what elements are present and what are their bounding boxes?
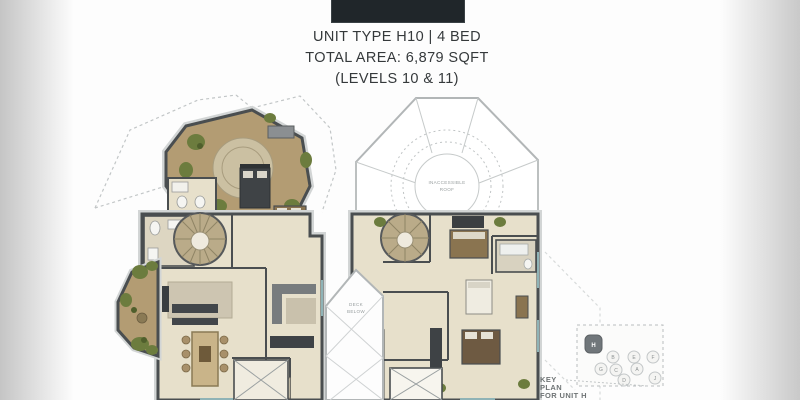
key-plan-unit-c-label: C (614, 368, 618, 374)
deck-below-label-line2: BELOW (347, 309, 365, 314)
key-plan-unit-d-label: D (622, 378, 626, 384)
upper-bathroom (496, 240, 536, 272)
key-plan: H B E F G C A (540, 325, 663, 400)
upper-bedroom-bed (240, 164, 270, 208)
utility-room (168, 178, 216, 214)
floor-plan-canvas: INACCESSIBLE ROOF (0, 0, 800, 400)
stair-shaft (234, 360, 288, 400)
deck-below-label-line1: DECK (349, 302, 364, 307)
key-plan-caption-line3: FOR UNIT H (540, 391, 587, 400)
inaccessible-roof-label-line1: INACCESSIBLE (428, 180, 465, 185)
key-plan-unit-f-label: F (651, 355, 654, 361)
brochure-page: UNIT TYPE H10 | 4 BED TOTAL AREA: 6,879 … (0, 0, 800, 400)
upper-stair-shaft (390, 368, 442, 400)
inaccessible-roof-label-line2: ROOF (440, 187, 454, 192)
left-floor-plan (95, 95, 336, 400)
key-plan-unit-g-label: G (599, 367, 603, 373)
family-room-furniture (270, 284, 316, 348)
spiral-staircase-lower (174, 213, 226, 265)
deck-below: DECK BELOW (326, 270, 383, 400)
key-plan-unit-h-label: H (591, 343, 595, 349)
terrace-furniture (268, 126, 294, 138)
spiral-staircase-upper (381, 214, 429, 262)
right-floor-plan: INACCESSIBLE ROOF (326, 98, 600, 400)
